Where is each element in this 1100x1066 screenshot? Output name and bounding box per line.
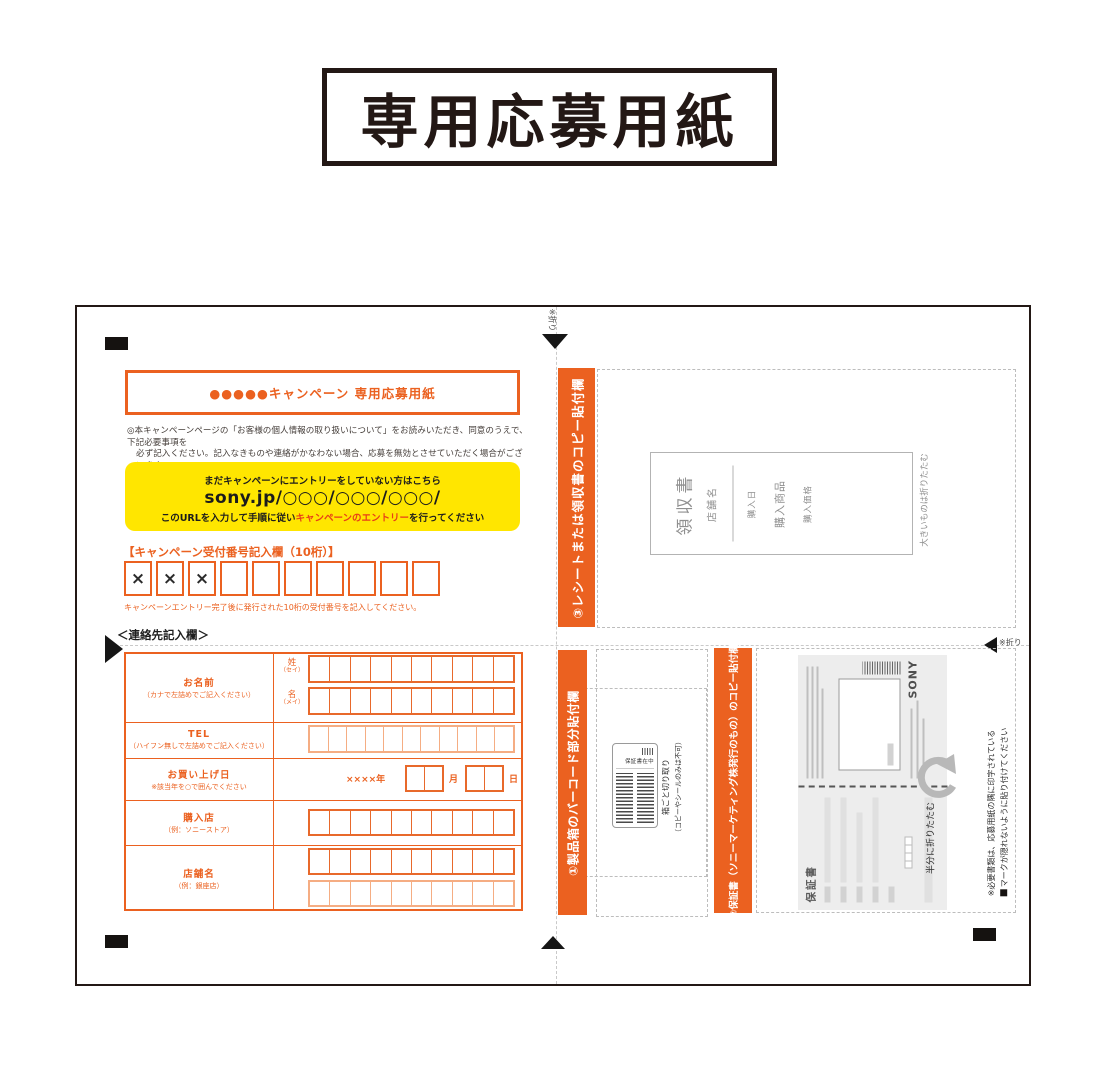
- shop-input-cells: [308, 809, 515, 836]
- registration-mark-bottom-left: [105, 935, 128, 948]
- horizontal-fold-line: [105, 645, 1029, 646]
- mei-input-cells: [308, 687, 515, 715]
- tel-sublabel: （ハイフン無しで左詰めでご記入ください）: [126, 741, 272, 751]
- day-suffix: 日: [509, 772, 518, 785]
- field-chip-placeholder: [824, 886, 830, 902]
- barcode-sticker-label: 保証書在中: [616, 757, 654, 765]
- privacy-notice-line1: ◎本キャンペーンページの「お客様の個人情報の取り扱いについて」をお読みいただき、…: [127, 426, 529, 449]
- reception-digit-box: [252, 561, 280, 596]
- entry-lead-text: まだキャンペーンにエントリーをしていない方はこちら: [125, 473, 520, 487]
- barcode-icon: [637, 773, 654, 823]
- receipt-sample: 領収書 店舗名 購入日 購入商品 購入価格: [650, 452, 913, 555]
- receipt-sample-content: 領収書 店舗名 購入日 購入商品 購入価格: [650, 452, 913, 555]
- section-band-receipt-label: ③レシートまたは領収書のコピー貼付欄: [567, 377, 586, 618]
- reception-digit-box: [284, 561, 312, 596]
- barcode-icon: [616, 773, 633, 823]
- entry-url-text: sony.jp/○○○/○○○/○○○/: [125, 488, 520, 508]
- warranty-inner-box: [838, 678, 900, 770]
- field-chip-placeholder: [840, 886, 846, 902]
- entry-instruction-text: このURLを入力して手順に従いキャンペーンのエントリーを行ってください: [125, 510, 520, 524]
- fine-print-line: [806, 666, 808, 778]
- corner-mark-icon: [1000, 889, 1007, 896]
- contact-section-heading: ＜連絡先記入欄＞: [117, 627, 209, 643]
- tel-input-cells: [308, 725, 515, 753]
- section-band-barcode-label: ①製品箱のバーコード部分貼付欄: [564, 690, 581, 876]
- name-label: お名前: [126, 675, 272, 689]
- receipt-product-label: 購入商品: [771, 452, 787, 555]
- entry-instruction-pre: このURLを入力して手順に従い: [161, 513, 296, 524]
- reception-number-boxes: × × ×: [124, 561, 440, 596]
- reception-digit-box: [348, 561, 376, 596]
- section-band-receipt: ③レシートまたは領収書のコピー貼付欄: [558, 368, 595, 627]
- row-label-shop: 購入店 （例：ソニーストア）: [126, 800, 272, 845]
- reception-digit-box: [220, 561, 248, 596]
- warranty-fold-note: 半分に折りたたむ: [924, 802, 937, 874]
- reception-number-note: キャンペーンエントリー完了後に発行された10桁の受付番号を記入してください。: [124, 602, 421, 613]
- section-band-warranty: ②保証書（ソニーマーケティング株発行のもの）のコピー貼付欄: [714, 648, 752, 913]
- row-label-name: お名前 （カナで左詰めでご記入ください）: [126, 652, 272, 722]
- field-line-placeholder: [824, 797, 830, 882]
- paste-instruction-note: ※必要書類は、応募用紙の隅に印字されている マークが隠れないように貼り付けてくだ…: [986, 728, 1012, 897]
- fold-label-top: ※折り: [547, 309, 558, 332]
- sei-kana-label: （セイ）: [277, 668, 307, 675]
- reception-digit-box: [412, 561, 440, 596]
- warranty-mini-cells: [904, 836, 912, 868]
- warranty-barcode-icon: [862, 661, 900, 674]
- purchase-year-text: ××××年: [346, 772, 385, 785]
- warranty-title: 保証書: [803, 865, 818, 903]
- barcode-sticker-top: [616, 748, 654, 755]
- mini-barcode-icon: [642, 748, 654, 755]
- sei-tag: 姓 （セイ）: [277, 659, 307, 675]
- tel-label: TEL: [126, 729, 272, 740]
- month-suffix: 月: [449, 772, 458, 785]
- receipt-title: 領収書: [670, 452, 695, 555]
- paste-instruction-line2: マークが隠れないように貼り付けてください: [1000, 728, 1009, 888]
- section-band-warranty-label: ②保証書（ソニーマーケティング株発行のもの）のコピー貼付欄: [726, 644, 740, 917]
- registration-mark-bottom-right: [973, 928, 996, 941]
- field-chip-placeholder: [856, 886, 862, 902]
- fine-print-line: [811, 666, 813, 778]
- entry-instruction-post: を行ってください: [409, 513, 484, 524]
- fold-arrow-up-icon: [541, 936, 565, 949]
- field-chip-placeholder: [887, 743, 893, 765]
- receipt-fold-note: 大きいものは折りたたむ: [918, 453, 930, 547]
- campaign-form-header: ●●●●●キャンペーン 専用応募用紙: [125, 370, 520, 415]
- shop-label: 購入店: [126, 810, 272, 824]
- fine-print-line: [821, 688, 823, 778]
- field-chip-placeholder: [888, 886, 894, 902]
- entry-url-callout: まだキャンペーンにエントリーをしていない方はこちら sony.jp/○○○/○○…: [125, 462, 520, 531]
- name-sublabel: （カナで左詰めでご記入ください）: [126, 690, 272, 700]
- paste-instruction-line1: ※必要書類は、応募用紙の隅に印字されている: [986, 728, 999, 897]
- field-line-placeholder: [872, 797, 878, 882]
- day-input-cells: [465, 765, 504, 792]
- mei-tag: 名 （メイ）: [277, 691, 307, 707]
- store-input-cells-row1: [308, 848, 515, 875]
- receipt-price-label: 購入価格: [801, 452, 813, 555]
- reception-digit-box: ×: [156, 561, 184, 596]
- paste-instruction-line2-wrap: マークが隠れないように貼り付けてください: [999, 728, 1012, 897]
- fold-arrow-down-icon: [542, 334, 568, 349]
- fold-arrow-icon: [910, 752, 956, 800]
- entry-instruction-emphasis: キャンペーンのエントリー: [296, 513, 410, 524]
- purchase-date-sublabel: ※該当年を○で囲んでください: [126, 782, 272, 792]
- row-label-store-name: 店舗名 （例：銀座店）: [126, 845, 272, 911]
- sony-logo: SONY: [906, 660, 919, 698]
- application-sheet-page: 専用応募用紙 ※折り ※折り ●●●●●キャンペーン 専用応募用紙 ◎本キャンペ…: [0, 0, 1100, 1066]
- reception-digit-box: [316, 561, 344, 596]
- field-line-placeholder: [856, 812, 862, 882]
- table-column-divider: [273, 652, 274, 911]
- month-input-cells: [405, 765, 444, 792]
- sei-input-cells: [308, 655, 515, 683]
- row-label-tel: TEL （ハイフン無しで左詰めでご記入ください）: [126, 722, 272, 758]
- reception-number-label: 【キャンペーン受付番号記入欄（10桁）】: [123, 544, 340, 560]
- registration-mark-top-left: [105, 337, 128, 350]
- store-name-sublabel: （例：銀座店）: [126, 881, 272, 891]
- receipt-date-label: 購入日: [745, 452, 757, 555]
- purchase-date-label: お買い上げ日: [126, 767, 272, 781]
- reception-digit-box: ×: [124, 561, 152, 596]
- store-name-label: 店舗名: [126, 866, 272, 880]
- barcode-sticker-sample: 保証書在中: [612, 743, 658, 828]
- barcode-bars: [616, 768, 654, 823]
- row-label-purchase-date: お買い上げ日 ※該当年を○で囲んでください: [126, 758, 272, 800]
- store-input-cells-row2: [308, 880, 515, 907]
- section-band-barcode: ①製品箱のバーコード部分貼付欄: [558, 650, 587, 915]
- receipt-divider: [732, 466, 733, 542]
- reception-digit-box: [380, 561, 408, 596]
- field-chip-placeholder: [872, 886, 878, 902]
- mei-kana-label: （メイ）: [277, 700, 307, 707]
- field-line-placeholder: [840, 797, 846, 882]
- fine-print-line: [816, 666, 818, 778]
- receipt-store-label: 店舗名: [703, 452, 718, 555]
- reception-digit-box: ×: [188, 561, 216, 596]
- shop-sublabel: （例：ソニーストア）: [126, 825, 272, 835]
- page-title: 専用応募用紙: [322, 68, 777, 166]
- fold-label-right: ※折り: [999, 637, 1022, 648]
